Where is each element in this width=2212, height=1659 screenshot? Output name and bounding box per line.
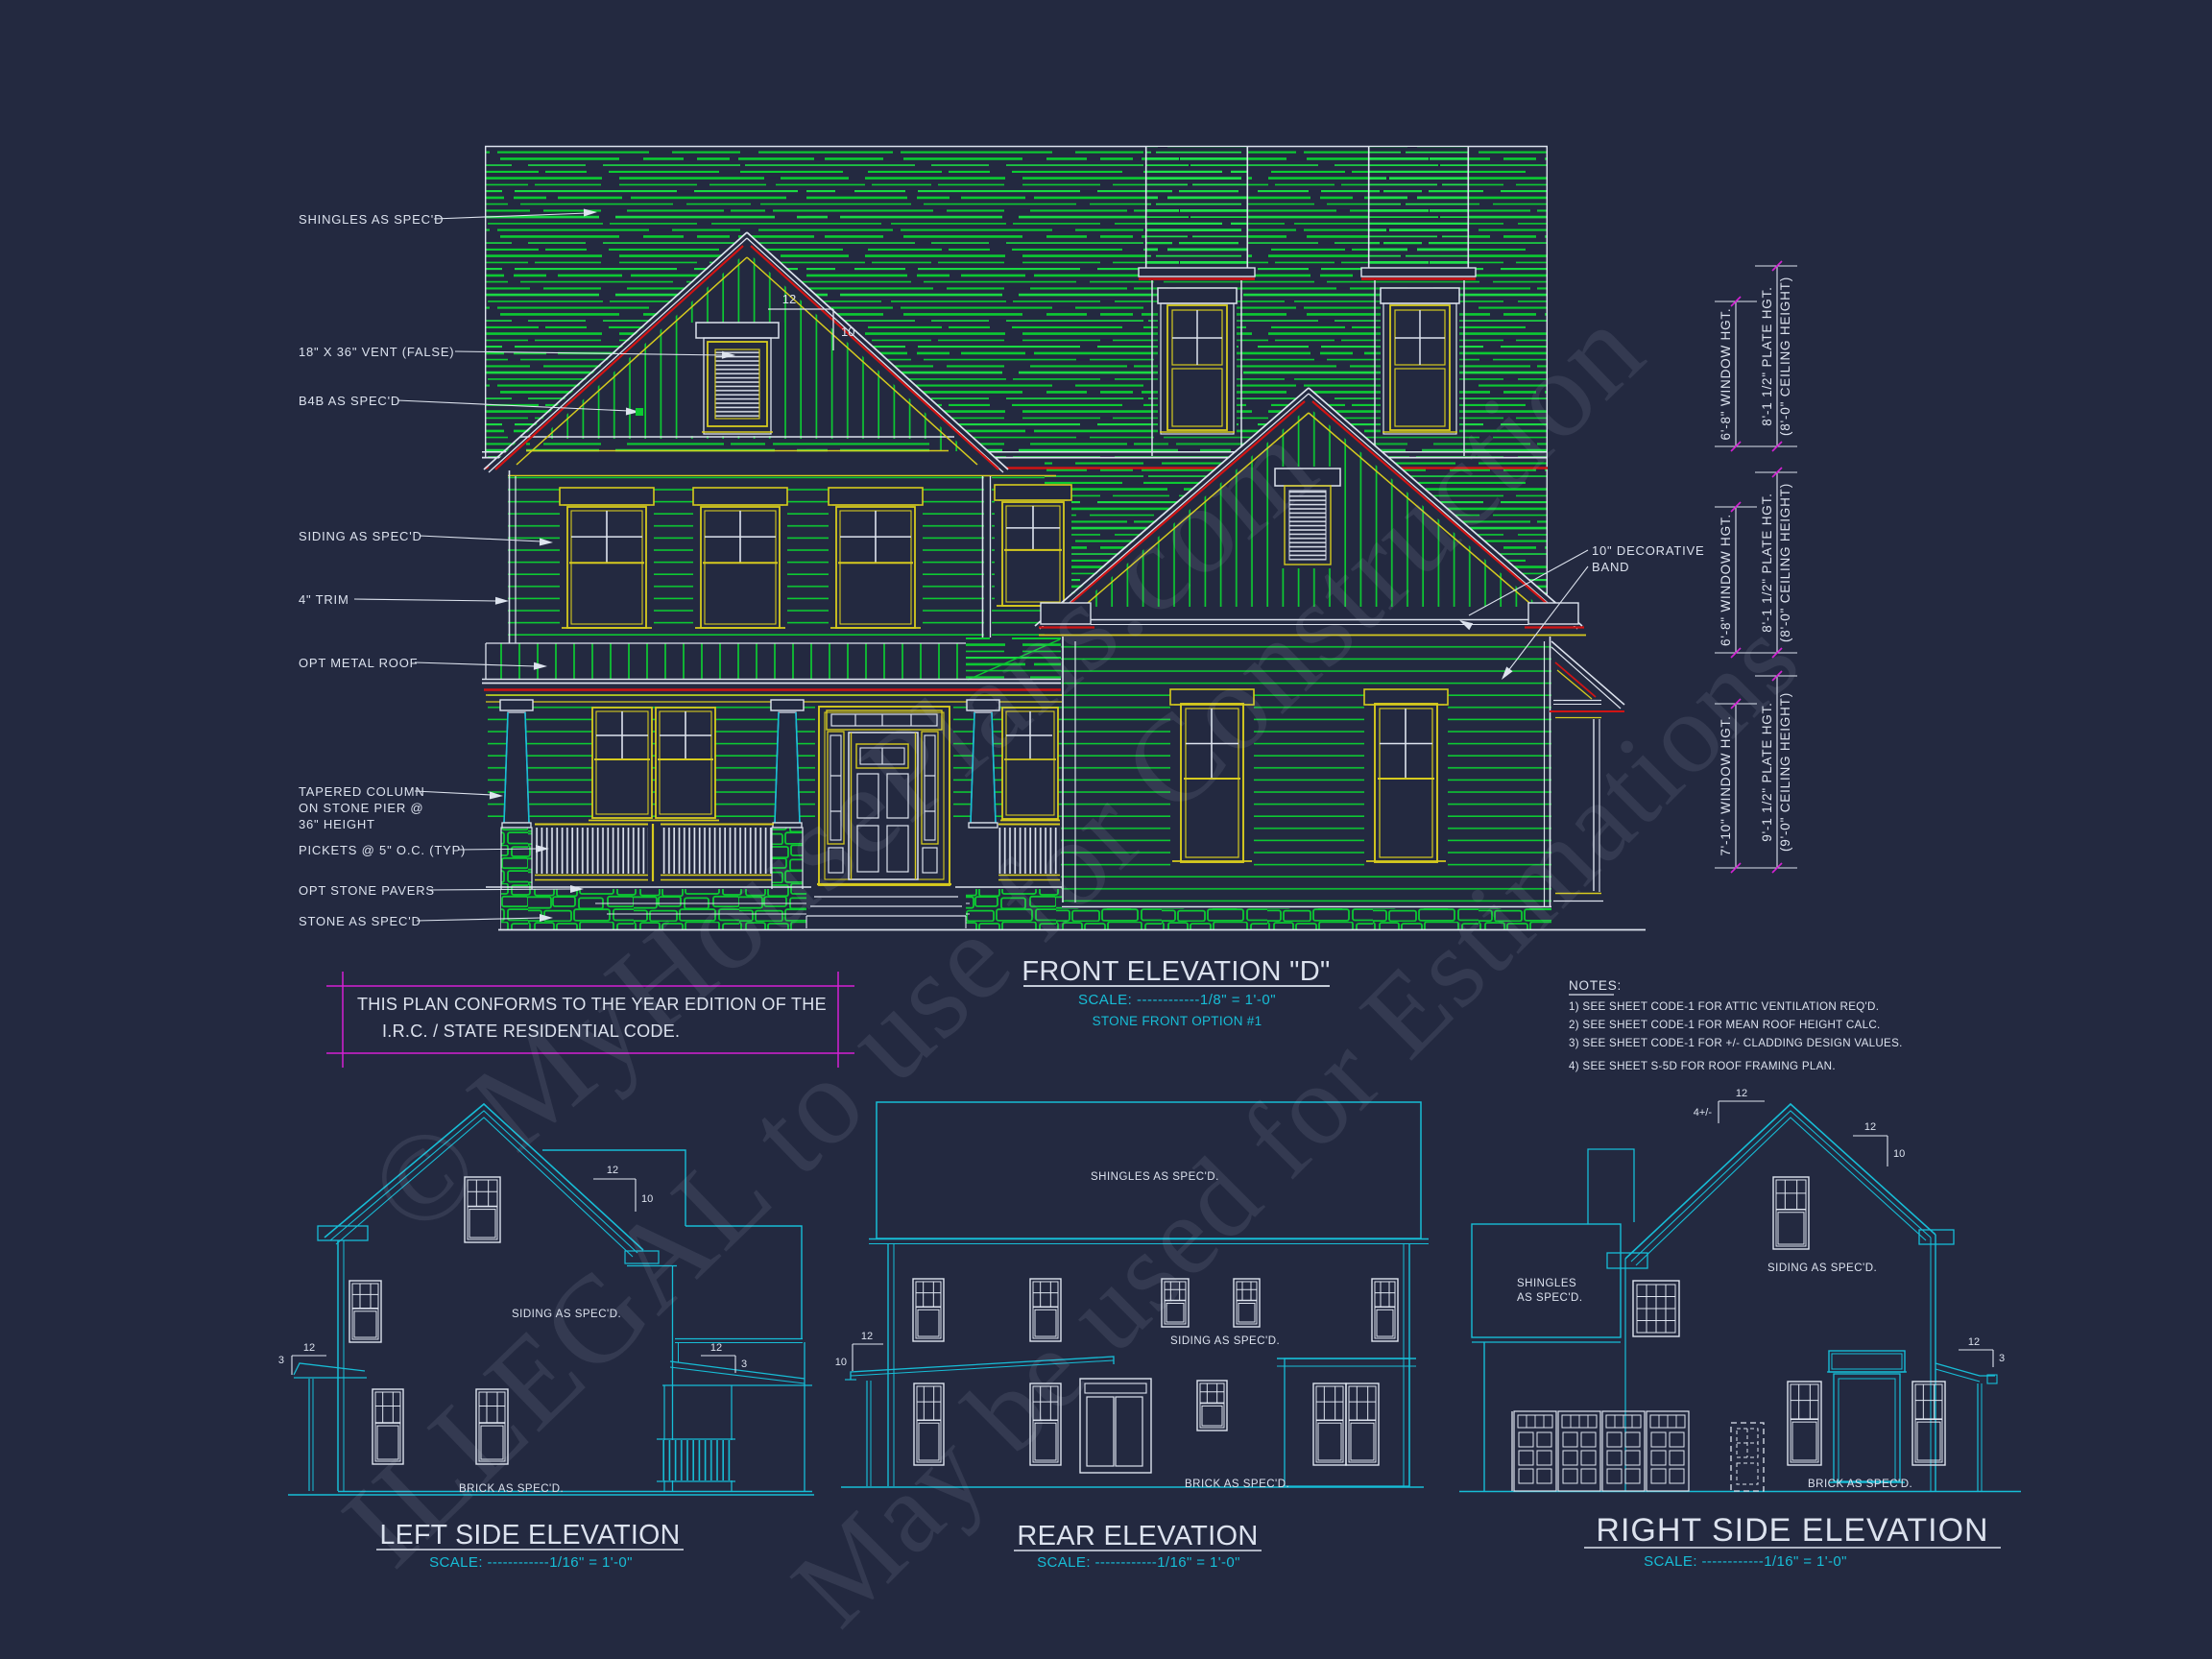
- svg-text:12: 12: [861, 1331, 873, 1342]
- svg-text:REAR ELEVATION: REAR ELEVATION: [1017, 1521, 1258, 1551]
- svg-text:10: 10: [841, 325, 854, 339]
- svg-text:12: 12: [1968, 1336, 1980, 1348]
- svg-text:4+/-: 4+/-: [1694, 1107, 1713, 1118]
- svg-text:BRICK AS SPEC'D.: BRICK AS SPEC'D.: [1185, 1479, 1289, 1490]
- svg-text:1) SEE SHEET CODE-1 FOR ATTIC: 1) SEE SHEET CODE-1 FOR ATTIC VENTILATIO…: [1569, 1000, 1879, 1013]
- svg-text:12: 12: [1864, 1121, 1876, 1133]
- svg-text:SIDING AS SPEC'D.: SIDING AS SPEC'D.: [1170, 1335, 1280, 1347]
- svg-text:STONE FRONT OPTION #1: STONE FRONT OPTION #1: [1093, 1014, 1262, 1028]
- svg-text:B4B AS SPEC'D: B4B AS SPEC'D: [299, 394, 400, 408]
- svg-text:OPT STONE PAVERS: OPT STONE PAVERS: [299, 883, 435, 898]
- svg-text:12: 12: [607, 1165, 618, 1176]
- svg-text:12: 12: [1736, 1088, 1747, 1099]
- svg-text:12: 12: [782, 292, 796, 306]
- svg-text:3: 3: [278, 1355, 284, 1366]
- svg-text:10: 10: [835, 1357, 847, 1368]
- svg-text:BAND: BAND: [1592, 560, 1629, 574]
- svg-text:SCALE: ------------1/16" = 1'-: SCALE: ------------1/16" = 1'-0": [1644, 1553, 1847, 1570]
- svg-text:4" TRIM: 4" TRIM: [299, 592, 349, 607]
- svg-text:SIDING AS SPEC'D.: SIDING AS SPEC'D.: [1767, 1262, 1877, 1274]
- svg-text:10" DECORATIVE: 10" DECORATIVE: [1592, 543, 1704, 558]
- svg-text:2) SEE SHEET CODE-1 FOR MEAN: 2) SEE SHEET CODE-1 FOR MEAN ROOF HEIGHT…: [1569, 1019, 1881, 1031]
- svg-text:SCALE: ------------1/8" = 1'-0: SCALE: ------------1/8" = 1'-0": [1078, 992, 1276, 1008]
- svg-text:SIDING AS SPEC'D: SIDING AS SPEC'D: [299, 529, 422, 543]
- svg-text:NOTES:: NOTES:: [1569, 978, 1622, 993]
- svg-text:8'-1 1/2" PLATE HGT.: 8'-1 1/2" PLATE HGT.: [1760, 493, 1774, 632]
- svg-text:BRICK AS SPEC'D.: BRICK AS SPEC'D.: [1808, 1479, 1912, 1490]
- svg-text:FRONT ELEVATION "D": FRONT ELEVATION "D": [1022, 956, 1330, 987]
- svg-text:8'-1 1/2" PLATE HGT.: 8'-1 1/2" PLATE HGT.: [1760, 286, 1774, 425]
- svg-text:STONE AS SPEC'D: STONE AS SPEC'D: [299, 914, 421, 928]
- svg-text:TAPERED COLUMN: TAPERED COLUMN: [299, 784, 425, 799]
- svg-text:SHINGLES: SHINGLES: [1517, 1278, 1576, 1289]
- svg-text:(8'-0" CEILING HEIGHT): (8'-0" CEILING HEIGHT): [1778, 483, 1792, 642]
- svg-text:10: 10: [1893, 1148, 1905, 1160]
- svg-text:4) SEE SHEET S-5D FOR ROOF FR: 4) SEE SHEET S-5D FOR ROOF FRAMING PLAN.: [1569, 1060, 1836, 1072]
- svg-text:6'-8" WINDOW HGT.: 6'-8" WINDOW HGT.: [1719, 308, 1733, 441]
- svg-text:3: 3: [741, 1358, 747, 1370]
- svg-text:3) SEE SHEET CODE-1 FOR +/- C: 3) SEE SHEET CODE-1 FOR +/- CLADDING DES…: [1569, 1037, 1903, 1049]
- svg-text:PICKETS @ 5" O.C. (TYP): PICKETS @ 5" O.C. (TYP): [299, 843, 466, 857]
- svg-text:SCALE: ------------1/16" = 1'-: SCALE: ------------1/16" = 1'-0": [1037, 1554, 1240, 1571]
- svg-text:12: 12: [710, 1342, 722, 1354]
- svg-text:SCALE: ------------1/16" = 1'-: SCALE: ------------1/16" = 1'-0": [429, 1554, 633, 1571]
- svg-text:AS SPEC'D.: AS SPEC'D.: [1517, 1292, 1583, 1304]
- svg-text:ON STONE PIER @: ON STONE PIER @: [299, 801, 423, 815]
- svg-text:(8'-0" CEILING HEIGHT): (8'-0" CEILING HEIGHT): [1778, 276, 1792, 436]
- svg-text:SHINGLES AS SPEC'D: SHINGLES AS SPEC'D: [299, 212, 444, 227]
- svg-text:OPT METAL ROOF: OPT METAL ROOF: [299, 656, 418, 670]
- svg-text:3: 3: [1999, 1353, 2005, 1364]
- svg-text:36" HEIGHT: 36" HEIGHT: [299, 817, 375, 831]
- svg-text:RIGHT SIDE ELEVATION: RIGHT SIDE ELEVATION: [1596, 1512, 1988, 1549]
- svg-text:18" X 36" VENT (FALSE): 18" X 36" VENT (FALSE): [299, 345, 454, 359]
- svg-text:12: 12: [303, 1342, 315, 1354]
